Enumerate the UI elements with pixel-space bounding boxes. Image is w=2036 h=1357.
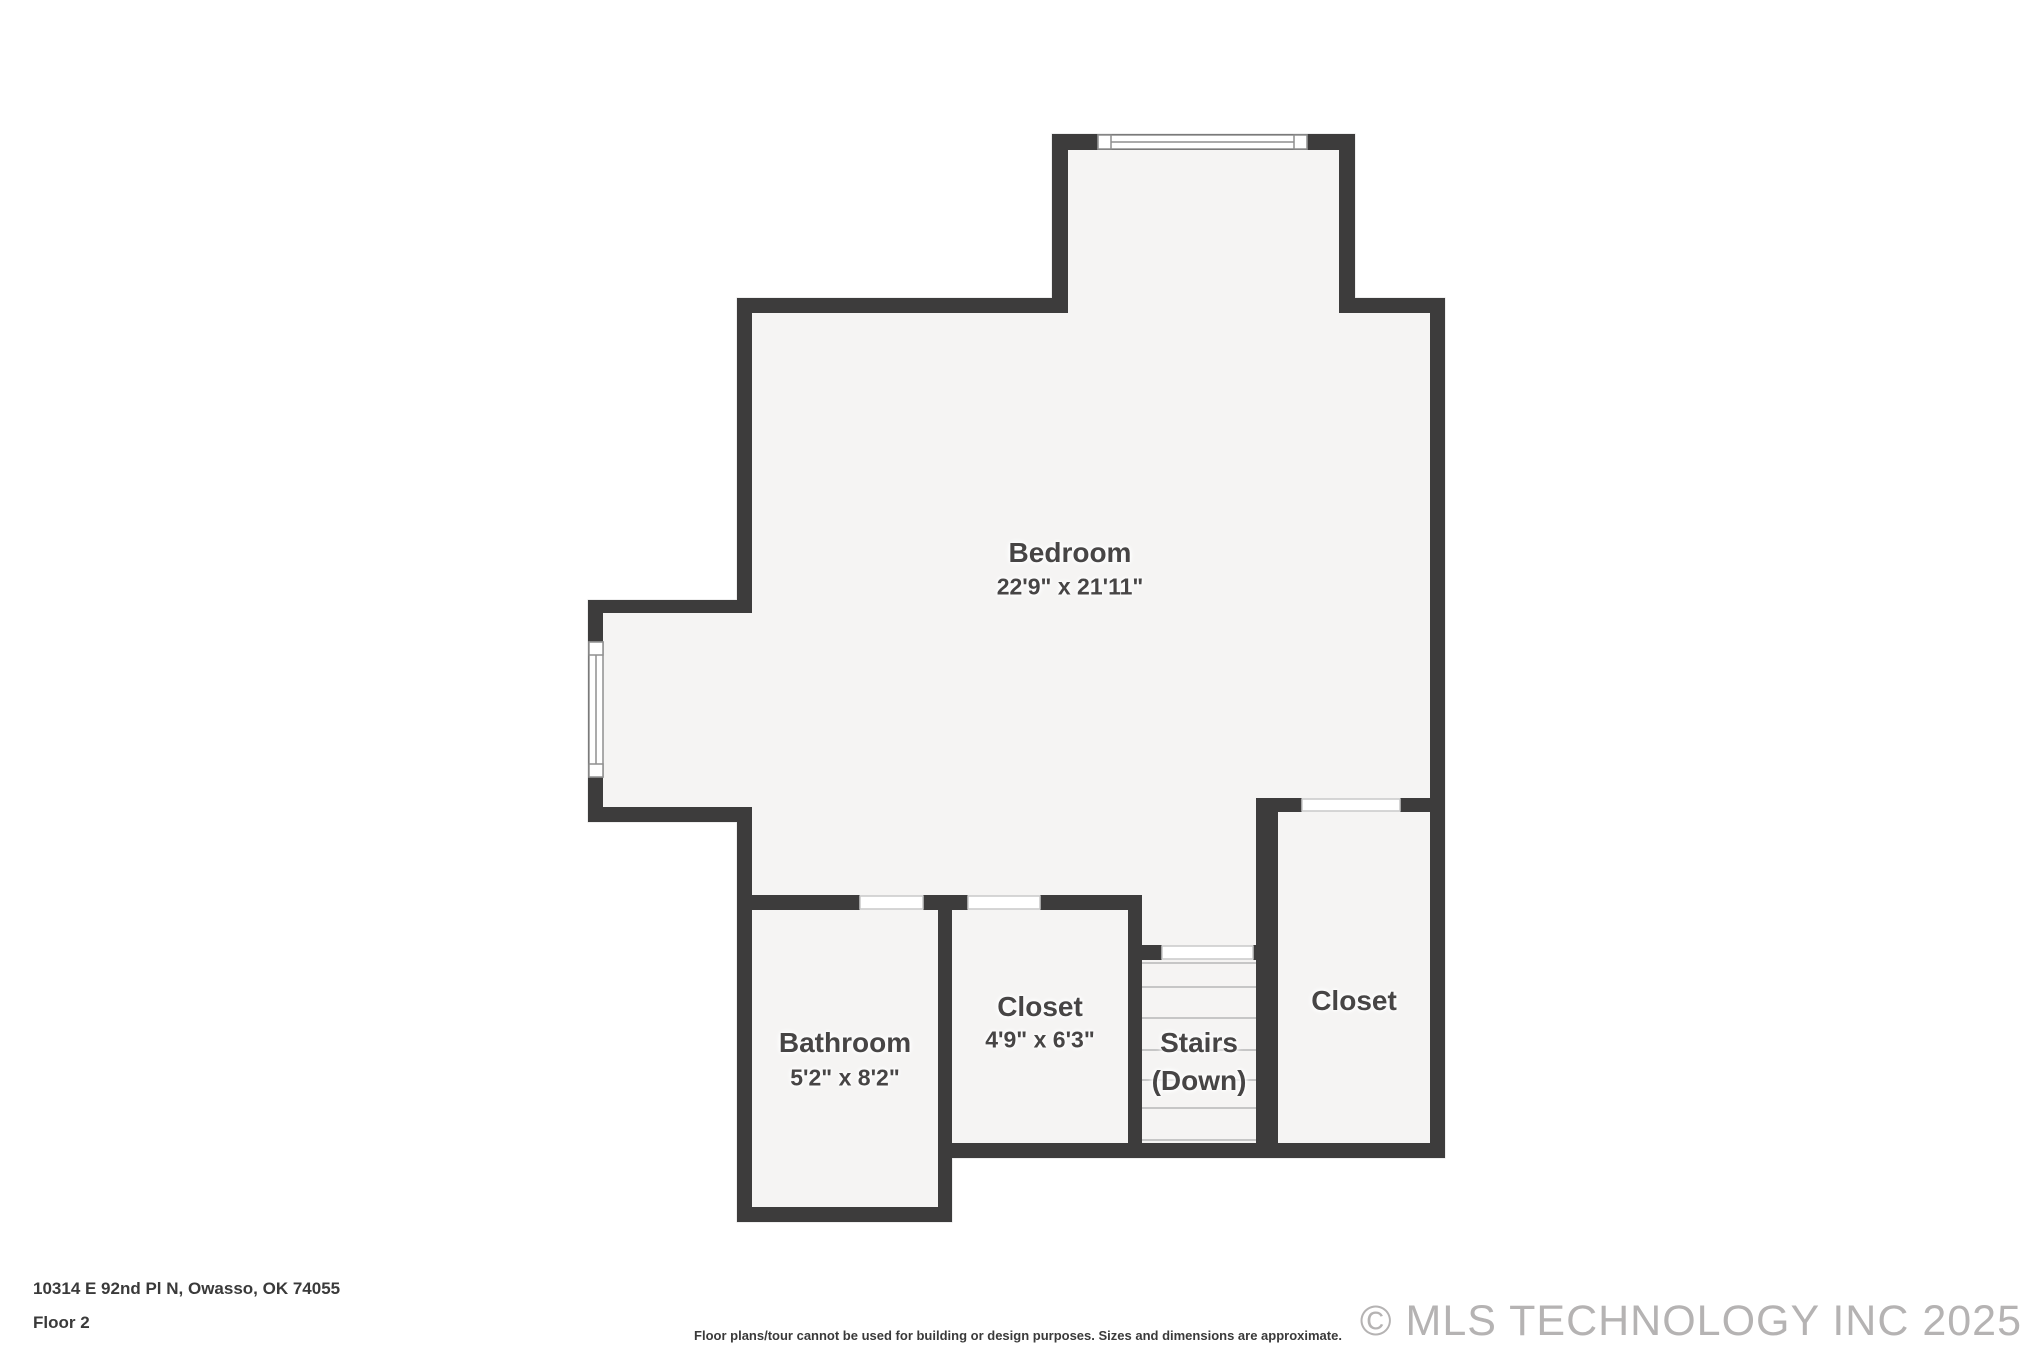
property-address: 10314 E 92nd Pl N, Owasso, OK 74055 bbox=[33, 1279, 340, 1299]
closet-middle-dimensions: 4'9" x 6'3" bbox=[985, 1027, 1095, 1054]
closet-door-opening bbox=[968, 896, 1040, 909]
wall-closet-divider bbox=[1256, 798, 1278, 1158]
wall-bump-right bbox=[1339, 134, 1355, 313]
closet-right-label: Closet bbox=[1311, 985, 1397, 1017]
stairs-direction-label: (Down) bbox=[1152, 1065, 1247, 1097]
stairs-door-opening bbox=[1162, 946, 1253, 959]
bathroom-label: Bathroom bbox=[779, 1027, 911, 1059]
floor-number-label: Floor 2 bbox=[33, 1313, 90, 1333]
wall-left-lower bbox=[737, 807, 752, 1222]
top-window bbox=[1098, 135, 1307, 149]
wall-bedroom-bottom-a bbox=[752, 895, 860, 910]
wall-right bbox=[1430, 298, 1445, 1158]
left-window bbox=[589, 642, 603, 777]
stairs-label: Stairs bbox=[1160, 1027, 1238, 1059]
rcloset-door-opening bbox=[1302, 799, 1400, 811]
floor-area bbox=[588, 134, 1445, 1222]
wall-rcloset-top-right bbox=[1400, 798, 1445, 812]
wall-bedroom-bottom-c bbox=[1040, 895, 1142, 910]
disclaimer-text: Floor plans/tour cannot be used for buil… bbox=[694, 1328, 1342, 1343]
wall-lbump-bottom bbox=[588, 807, 752, 822]
wall-left-upper bbox=[737, 298, 752, 613]
bedroom-label: Bedroom bbox=[1009, 537, 1132, 569]
wall-rcloset-top-left bbox=[1256, 798, 1302, 812]
wall-bedroom-bottom-b bbox=[923, 895, 968, 910]
floor-plan-page: Bedroom 22'9" x 21'11" Bathroom 5'2" x 8… bbox=[0, 0, 2036, 1357]
bathroom-dimensions: 5'2" x 8'2" bbox=[790, 1065, 900, 1092]
wall-bathroom-right bbox=[938, 895, 952, 1222]
bedroom-dimensions: 22'9" x 21'11" bbox=[997, 574, 1144, 601]
copyright-watermark: © MLS TECHNOLOGY INC 2025 bbox=[1360, 1297, 2022, 1346]
floor-plan-drawing bbox=[0, 0, 2036, 1357]
bathroom-door-opening bbox=[860, 896, 923, 909]
wall-top-right bbox=[1339, 298, 1445, 313]
closet-middle-label: Closet bbox=[997, 991, 1083, 1023]
wall-bump-left bbox=[1052, 134, 1068, 313]
wall-stairs-top-left bbox=[1142, 945, 1162, 960]
wall-bathroom-bottom bbox=[737, 1207, 952, 1222]
wall-lbump-top bbox=[588, 600, 752, 613]
wall-bottom bbox=[938, 1143, 1445, 1158]
wall-stairs-left bbox=[1128, 895, 1142, 1158]
wall-top-left bbox=[737, 298, 1068, 313]
